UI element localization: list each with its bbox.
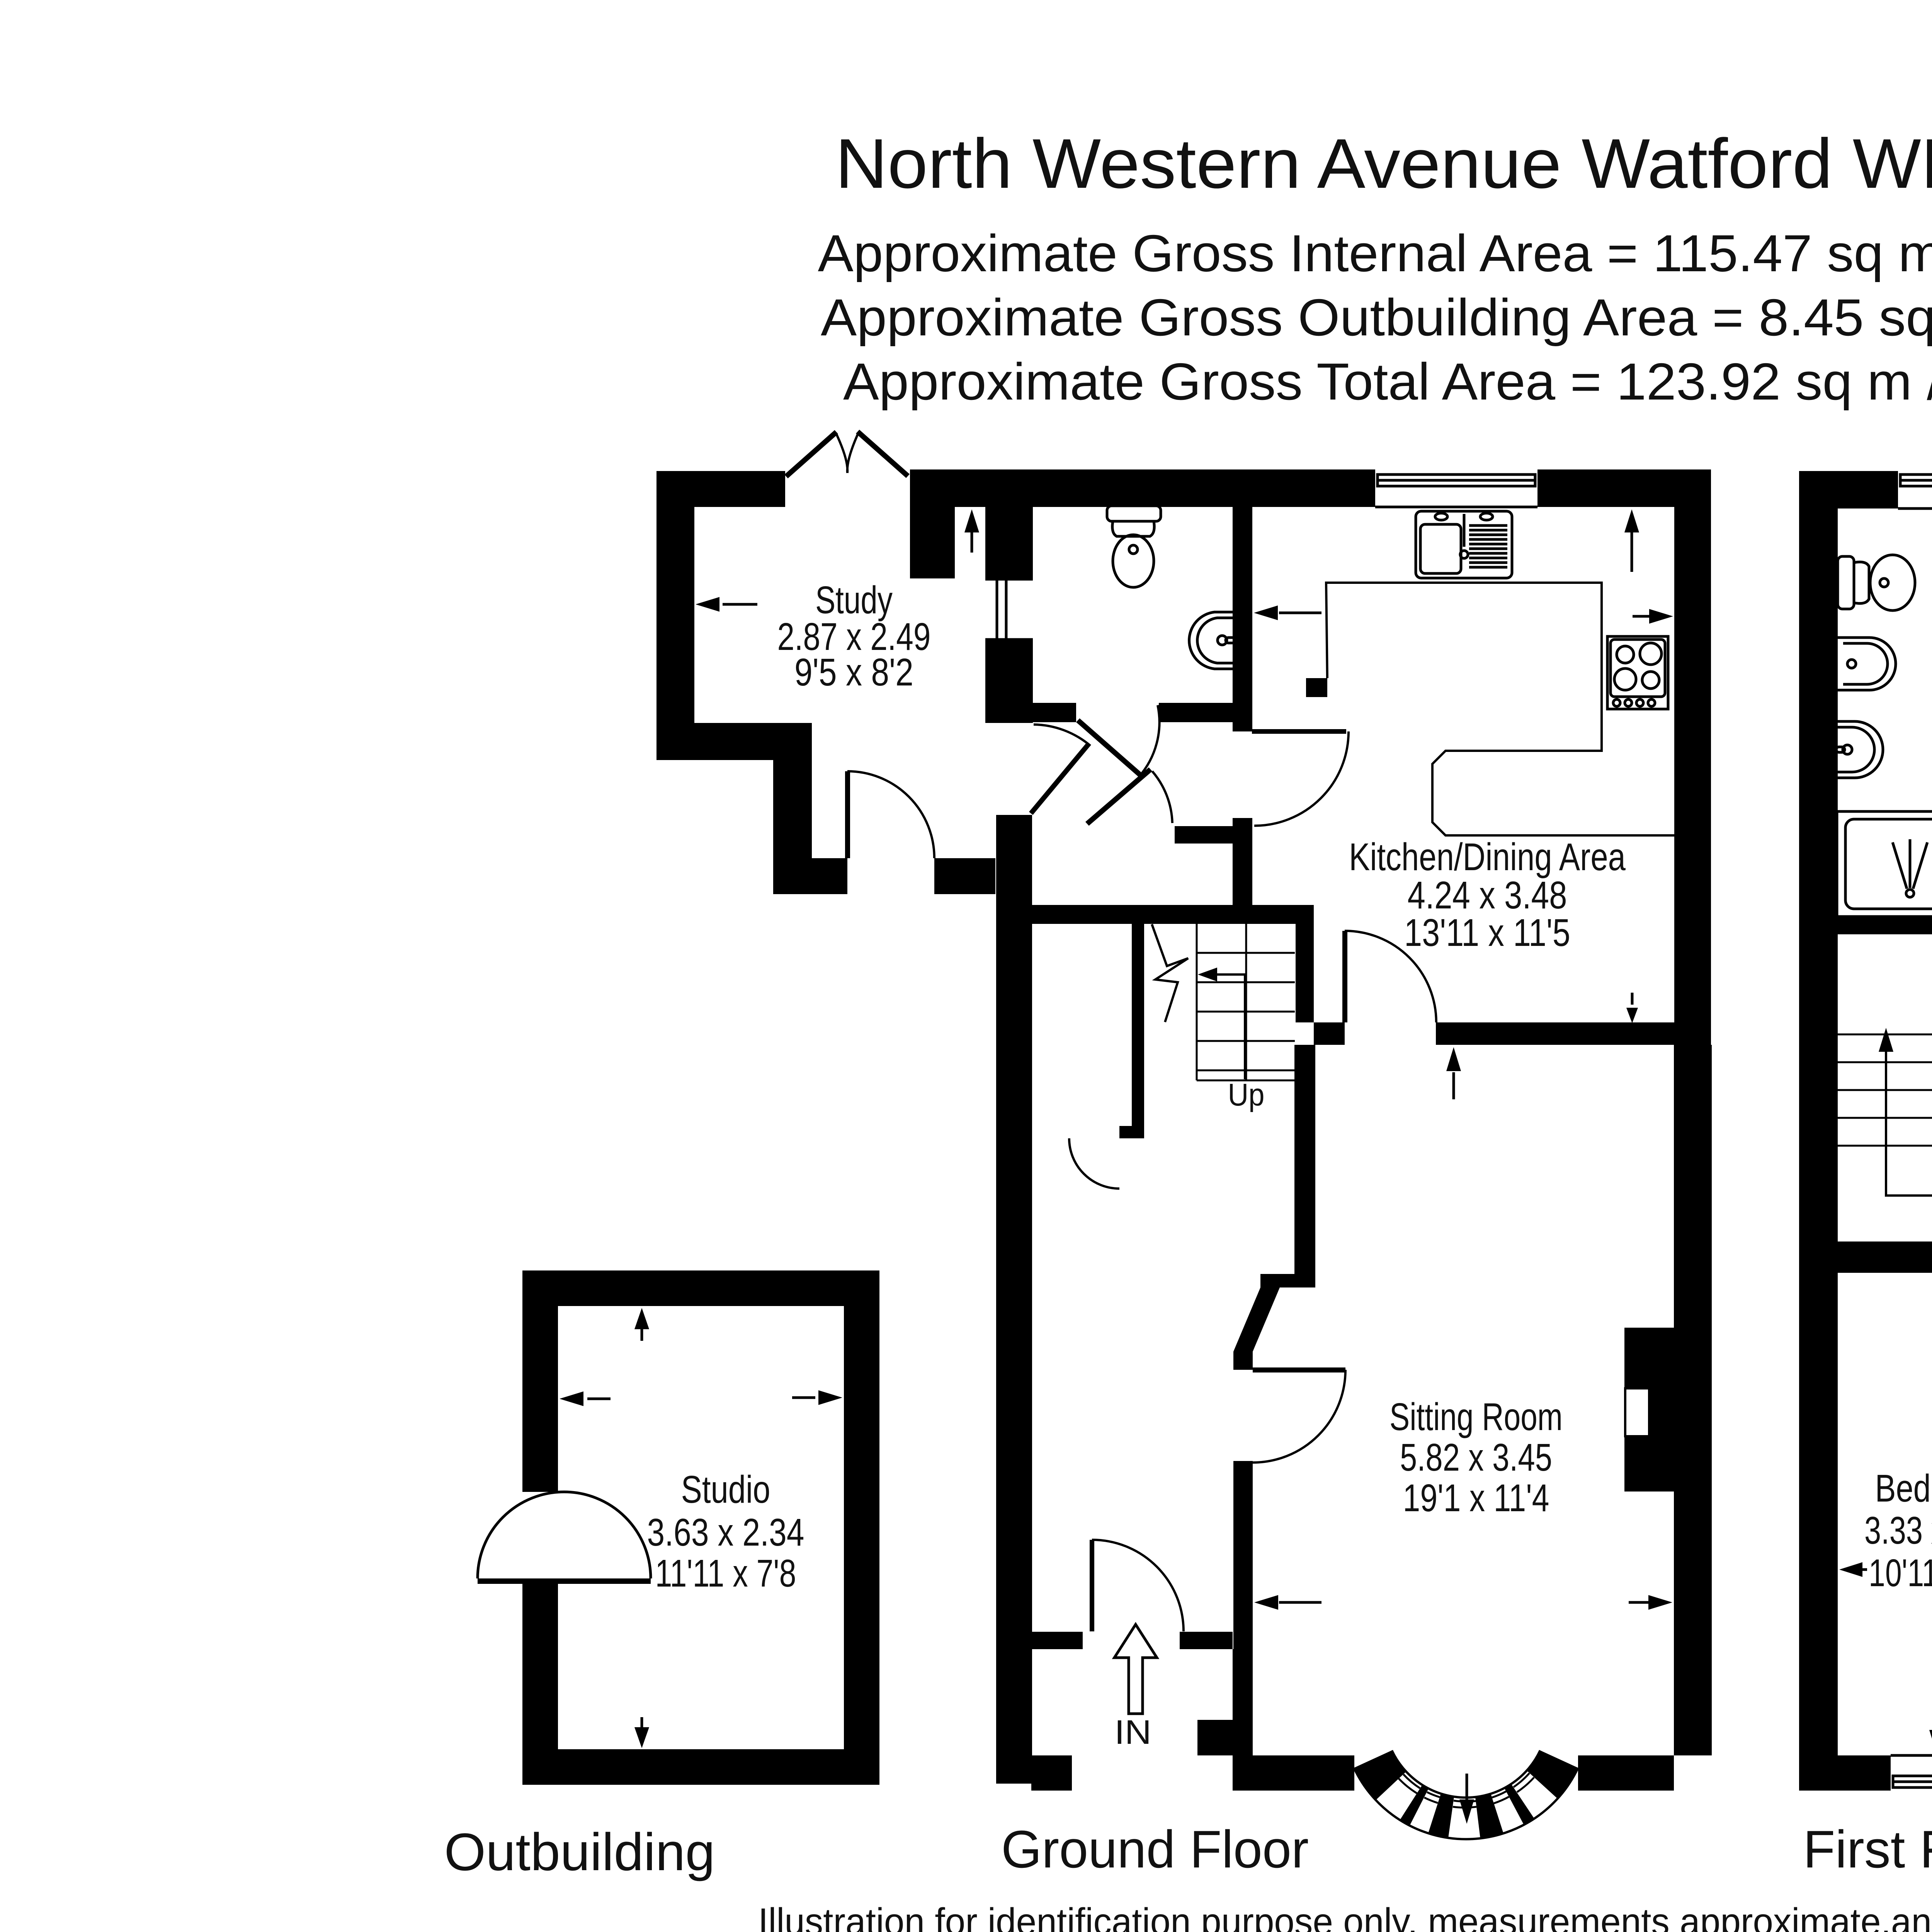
svg-text:10'11 x 5'6: 10'11 x 5'6 (1869, 1551, 1932, 1595)
svg-text:Studio: Studio (681, 1468, 770, 1511)
svg-text:9'5 x 8'2: 9'5 x 8'2 (794, 651, 913, 694)
svg-text:Approximate Gross Total Area =: Approximate Gross Total Area = 123.92 sq… (843, 352, 1932, 411)
svg-text:Up: Up (1228, 1077, 1265, 1112)
svg-text:5.82 x 3.45: 5.82 x 3.45 (1400, 1436, 1552, 1479)
svg-text:Illustration for identificatio: Illustration for identification purpose … (758, 1900, 1932, 1932)
svg-text:11'11 x 7'8: 11'11 x 7'8 (655, 1552, 796, 1595)
svg-text:19'1 x 11'4: 19'1 x 11'4 (1403, 1476, 1549, 1520)
svg-text:Approximate Gross Outbuilding: Approximate Gross Outbuilding Area = 8.4… (821, 288, 1932, 347)
svg-text:3.33 x 1.68: 3.33 x 1.68 (1864, 1509, 1932, 1552)
svg-text:Approximate Gross Internal Are: Approximate Gross Internal Area = 115.47… (818, 224, 1932, 282)
svg-text:North Western Avenue Watford W: North Western Avenue Watford WD25 0AN (835, 124, 1932, 203)
svg-text:Kitchen/Dining Area: Kitchen/Dining Area (1349, 835, 1626, 879)
svg-text:IN: IN (1114, 1713, 1151, 1751)
svg-text:Bedroom: Bedroom (1875, 1467, 1932, 1510)
svg-text:Ground Floor: Ground Floor (1001, 1820, 1309, 1879)
svg-text:Sitting Room: Sitting Room (1389, 1395, 1563, 1439)
svg-text:4.24 x 3.48: 4.24 x 3.48 (1408, 874, 1567, 917)
svg-text:13'11 x 11'5: 13'11 x 11'5 (1404, 911, 1570, 954)
svg-text:Outbuilding: Outbuilding (444, 1823, 715, 1882)
svg-text:First Floor: First Floor (1803, 1820, 1932, 1879)
svg-text:3.63 x 2.34: 3.63 x 2.34 (647, 1511, 804, 1554)
